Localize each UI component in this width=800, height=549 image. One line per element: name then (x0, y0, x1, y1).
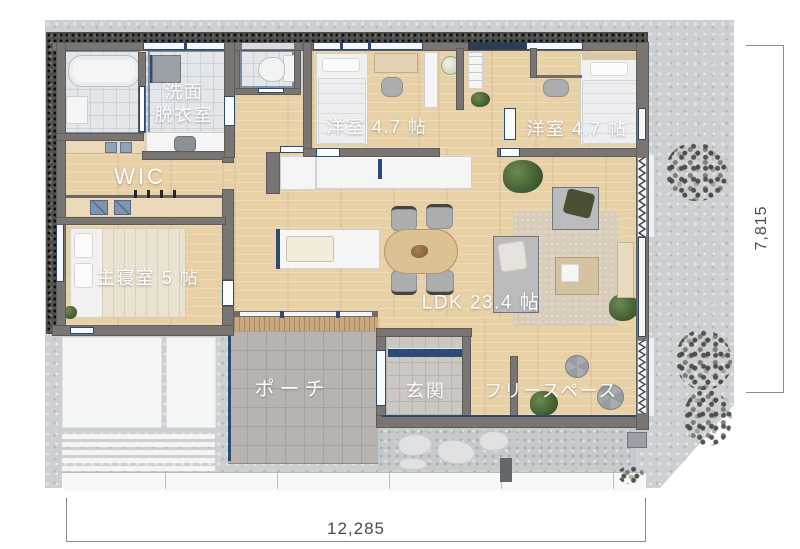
planting-strip (46, 32, 648, 42)
room-label-bedroom1: 洋室 4.7 帖 (326, 113, 427, 139)
window-post (280, 311, 284, 318)
window-frame-outer (649, 155, 654, 237)
counter-divider (378, 159, 382, 179)
sofa-cushion (497, 240, 528, 272)
entrance-wall-right (462, 336, 471, 416)
dimension-label-bottom: 12,285 (327, 519, 385, 539)
bath-wall (56, 133, 144, 141)
sidewalk (62, 472, 646, 490)
master-wall-right (222, 306, 234, 326)
window (56, 224, 64, 282)
sidewalk-joint (277, 472, 278, 489)
washroom-wall (142, 151, 228, 160)
dimension-line-bottom (66, 541, 646, 542)
window (638, 108, 646, 140)
dining-chair-icon (426, 204, 453, 229)
corridor-wall (456, 48, 464, 110)
room-label-master-bedroom: 主寝室 5 帖 (97, 264, 200, 290)
storage-case-icon (90, 200, 108, 215)
garden-bush (676, 330, 732, 390)
driveway-pad (166, 337, 216, 428)
sink-basin-icon (174, 136, 196, 152)
washroom-door (224, 96, 235, 126)
wic-shelf (64, 198, 224, 216)
dimension-line-right (783, 45, 784, 393)
pillow-icon (322, 58, 360, 72)
toilet-icon (258, 57, 285, 82)
wood-deck (234, 316, 378, 331)
dimension-tick (66, 498, 67, 541)
approach-step (62, 450, 215, 455)
shoe-cabinet-icon (388, 348, 463, 357)
bathtub-icon (68, 55, 140, 87)
approach-step (62, 434, 215, 439)
bedroom2-door (500, 148, 520, 157)
room-label-free-space: フリースペース (484, 377, 617, 403)
toilet-door (258, 88, 284, 93)
front-door (376, 350, 386, 406)
pillow-icon (74, 263, 93, 288)
room-label-wic: WIC (114, 164, 166, 190)
window (242, 43, 294, 49)
porch-edge (228, 333, 231, 461)
zigzag-glyph (637, 157, 647, 237)
dimension-tick (746, 392, 783, 393)
papers (561, 264, 579, 282)
dining-chair-icon (391, 206, 417, 231)
wall-liner (382, 415, 638, 417)
washroom-label-line2: 脱衣室 (155, 104, 214, 127)
garden-bush (618, 466, 644, 484)
room-label-porch: ポーチ (255, 373, 330, 402)
closet (424, 52, 438, 108)
exterior-wall-left (56, 42, 66, 336)
shower-icon (66, 96, 88, 124)
window-post (336, 311, 340, 318)
outdoor-unit-icon (627, 432, 647, 448)
window-mullion (340, 42, 343, 50)
window-mullion (368, 42, 371, 50)
room-label-entrance: 玄関 (406, 377, 446, 403)
stepping-stone (399, 458, 427, 470)
sidewalk-joint (165, 472, 166, 489)
sliding-door (139, 86, 145, 132)
wic-wall-bottom (56, 217, 226, 225)
zigzag-glyph (637, 340, 647, 414)
downspout (500, 458, 512, 482)
pillow-icon (590, 62, 628, 76)
dimension-tick (645, 498, 646, 541)
master-bedroom-door (222, 280, 234, 306)
ldk-south-window (240, 312, 372, 316)
window-frame-outer (649, 338, 654, 416)
washing-machine-icon (150, 55, 181, 83)
sidewalk-joint (613, 472, 614, 489)
garden-bush (684, 390, 732, 446)
entrance-wall-top (376, 328, 472, 337)
high-window (468, 42, 526, 50)
dimension-tick (746, 45, 783, 46)
island-sink (286, 236, 334, 262)
refrigerator-icon (280, 156, 316, 190)
folding-door-icon (637, 157, 647, 237)
sidewalk-joint (389, 472, 390, 489)
door-leaf (504, 108, 516, 140)
kitchen-wall-stub (266, 152, 280, 194)
ottoman-icon (565, 355, 589, 378)
window (638, 237, 646, 337)
window-mullion (184, 42, 187, 50)
bedroom1-door (316, 148, 340, 157)
room-label-bedroom2: 洋室 4.7 帖 (526, 115, 627, 141)
storage-case-icon (114, 200, 131, 215)
wic-opening (222, 163, 234, 189)
approach-step (62, 466, 215, 471)
headboard (582, 53, 636, 60)
storage-box-icon (105, 142, 117, 153)
approach-step (62, 458, 215, 463)
bedroom1-wall-left (303, 42, 312, 157)
storage-box-icon (120, 142, 132, 153)
dimension-label-right: 7,815 (753, 205, 771, 250)
chair-icon (381, 77, 403, 97)
shelf-line (532, 75, 582, 78)
driveway-pad (62, 337, 162, 428)
desk-icon (374, 53, 418, 73)
window (70, 327, 94, 334)
bedroom2-wall-left (530, 48, 537, 78)
wic-shelf (64, 139, 144, 154)
stool-icon (543, 79, 569, 97)
garden-bush (666, 143, 728, 201)
ladder-shelf-icon (468, 52, 483, 89)
folding-door-icon (637, 340, 647, 414)
washroom-label-line1: 洗面 (155, 81, 214, 104)
window-bench (617, 242, 634, 298)
pillow-icon (74, 233, 93, 258)
room-label-washroom: 洗面 脱衣室 (155, 81, 214, 127)
island-edge (276, 229, 280, 269)
wic-hall-wall (222, 189, 234, 280)
approach-step (62, 442, 215, 447)
floor-plan-canvas: 洗面 脱衣室 WIC 主寝室 5 帖 洋室 4.7 帖 洋室 4.7 帖 LDK… (0, 0, 800, 549)
room-label-ldk: LDK 23.4 帖 (422, 288, 541, 315)
kitchen-counter (316, 156, 472, 189)
